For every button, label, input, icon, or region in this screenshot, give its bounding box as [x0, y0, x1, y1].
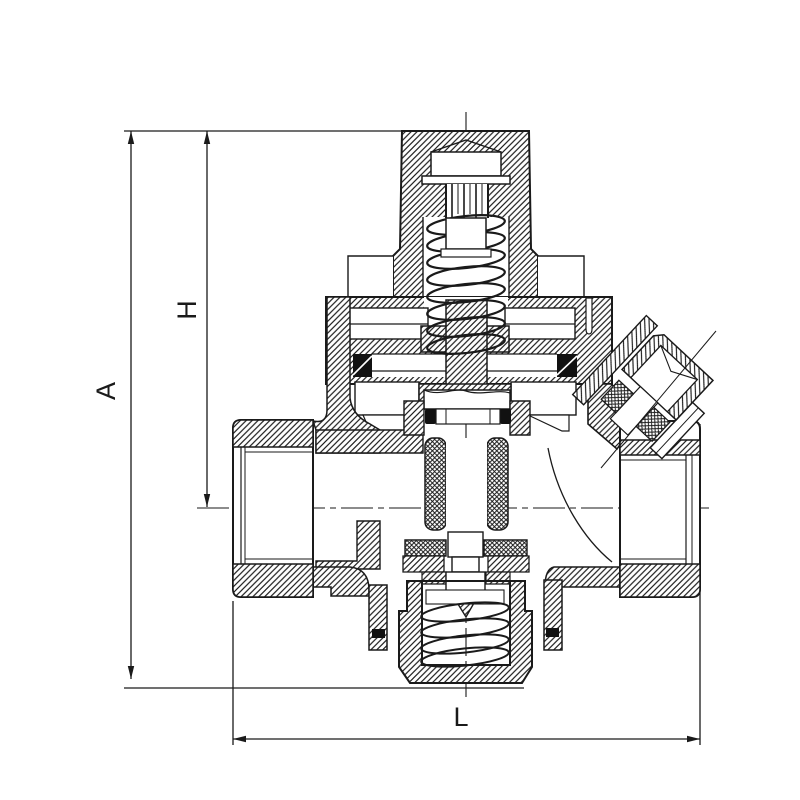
svg-text:L: L [453, 702, 468, 732]
svg-text:A: A [91, 382, 121, 400]
svg-text:H: H [172, 300, 202, 320]
